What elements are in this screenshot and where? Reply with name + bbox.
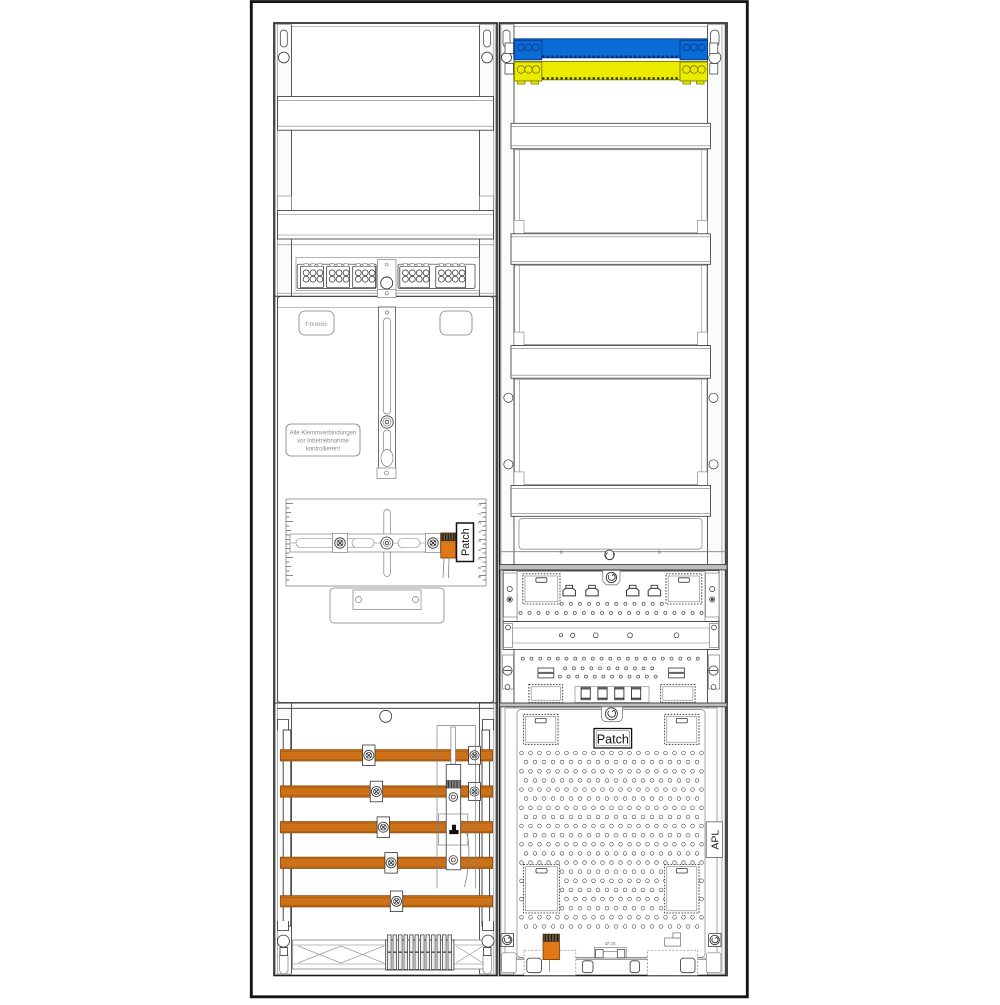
svg-text:vor Inbetriebnahme: vor Inbetriebnahme [297, 439, 349, 445]
svg-text:Alle Klemmverbindungen: Alle Klemmverbindungen [290, 431, 357, 437]
svg-text:Patch: Patch [460, 528, 472, 556]
svg-text:APL: APL [709, 830, 721, 850]
svg-text:kontrollieren!: kontrollieren! [306, 447, 341, 453]
svg-text:Patch: Patch [597, 733, 629, 747]
svg-text:f-tronic: f-tronic [305, 321, 328, 328]
svg-text:Ø 25: Ø 25 [605, 941, 616, 947]
